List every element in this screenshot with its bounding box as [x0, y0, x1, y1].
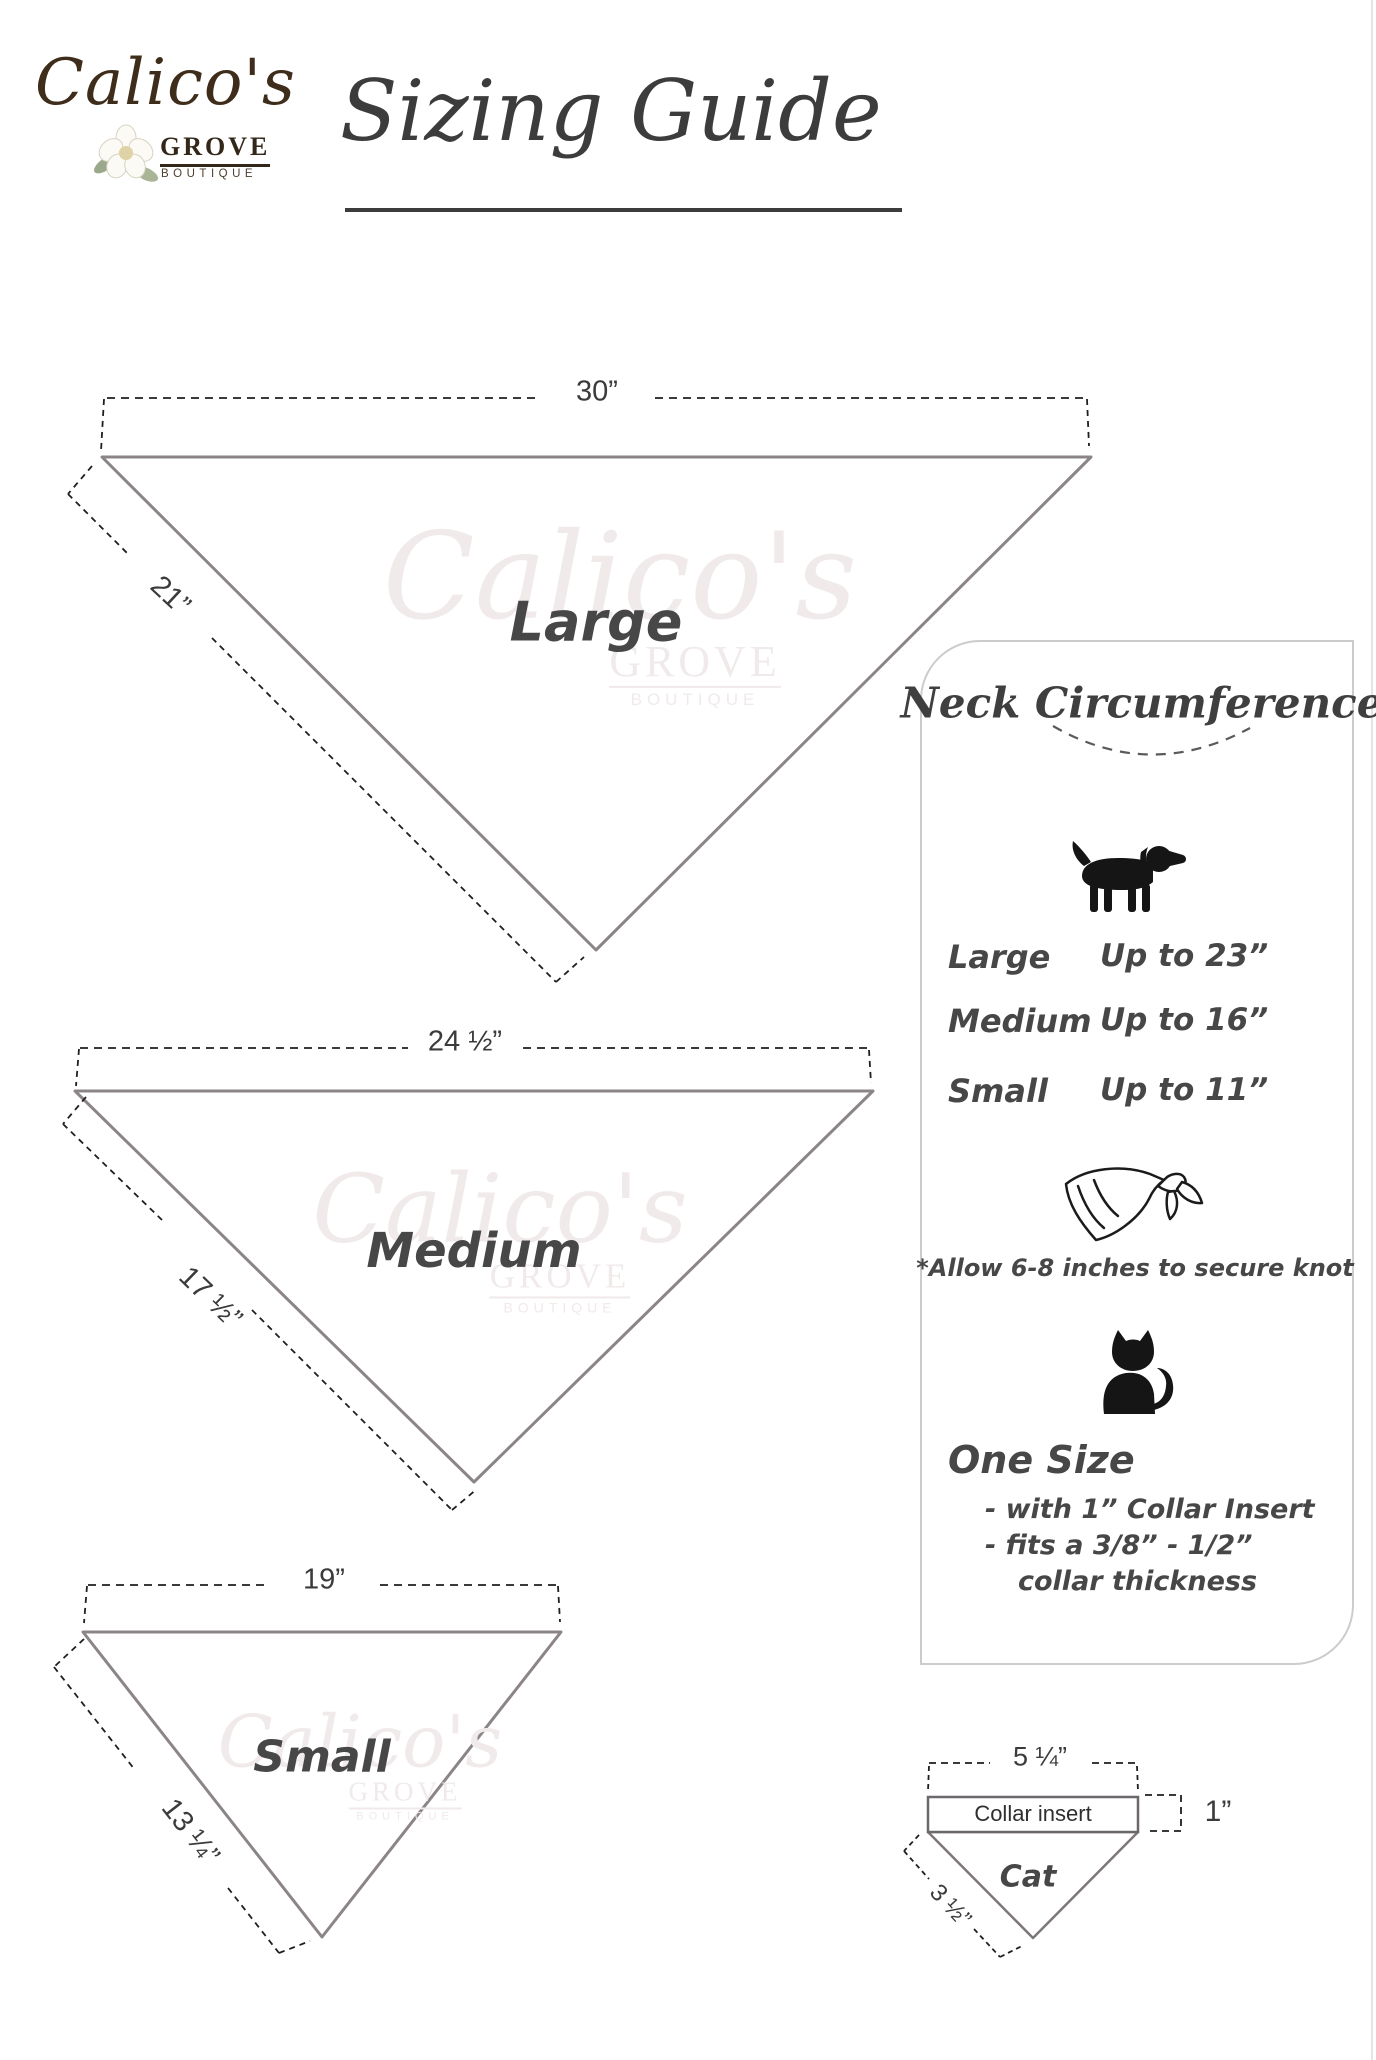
row-small-size: Small [948, 1072, 1048, 1110]
one-size-line3: collar thickness [1018, 1566, 1257, 1597]
flower-icon [91, 125, 160, 185]
cat-height-dimension: 1” [1205, 1795, 1232, 1829]
row-large-size: Large [948, 938, 1050, 976]
small-width-dimension: 19” [303, 1564, 345, 1597]
row-small-fit: Up to 11” [1100, 1072, 1268, 1108]
watermark-boutique: BOUTIQUE [533, 688, 857, 712]
cat-label: Cat [1000, 1860, 1057, 1895]
row-medium-size: Medium [948, 1002, 1092, 1040]
page-title: Sizing Guide [340, 62, 882, 160]
large-label: Large [510, 591, 683, 654]
one-size-line1: - with 1” Collar Insert [985, 1494, 1315, 1525]
sizing-guide-page: Calico's GROVE BOUTIQUE Calico's GROVE B… [0, 0, 1376, 2060]
medium-width-dimension: 24 ½” [428, 1026, 502, 1059]
row-large-fit: Up to 23” [1100, 938, 1268, 974]
collar-insert-label: Collar insert [974, 1801, 1091, 1827]
one-size-heading: One Size [948, 1438, 1135, 1482]
medium-label: Medium [366, 1223, 581, 1279]
brand-boutique: BOUTIQUE [161, 168, 257, 180]
panel-title: Neck Circumference [901, 679, 1376, 728]
watermark-boutique: BOUTIQUE [432, 1298, 687, 1318]
page-right-edge [1371, 0, 1373, 2060]
small-label: Small [253, 1732, 390, 1783]
title-underline [345, 208, 902, 212]
row-medium-fit: Up to 16” [1100, 1002, 1268, 1038]
brand-grove: GROVE [160, 132, 270, 167]
one-size-line2: - fits a 3/8” - 1/2” [985, 1530, 1253, 1561]
watermark-boutique: BOUTIQUE [308, 1809, 502, 1824]
large-width-dimension: 30” [576, 376, 618, 409]
knot-note: *Allow 6-8 inches to secure knot [916, 1254, 1354, 1282]
brand-name: Calico's [35, 46, 296, 120]
cat-width-dimension: 5 ¼” [1013, 1742, 1067, 1773]
